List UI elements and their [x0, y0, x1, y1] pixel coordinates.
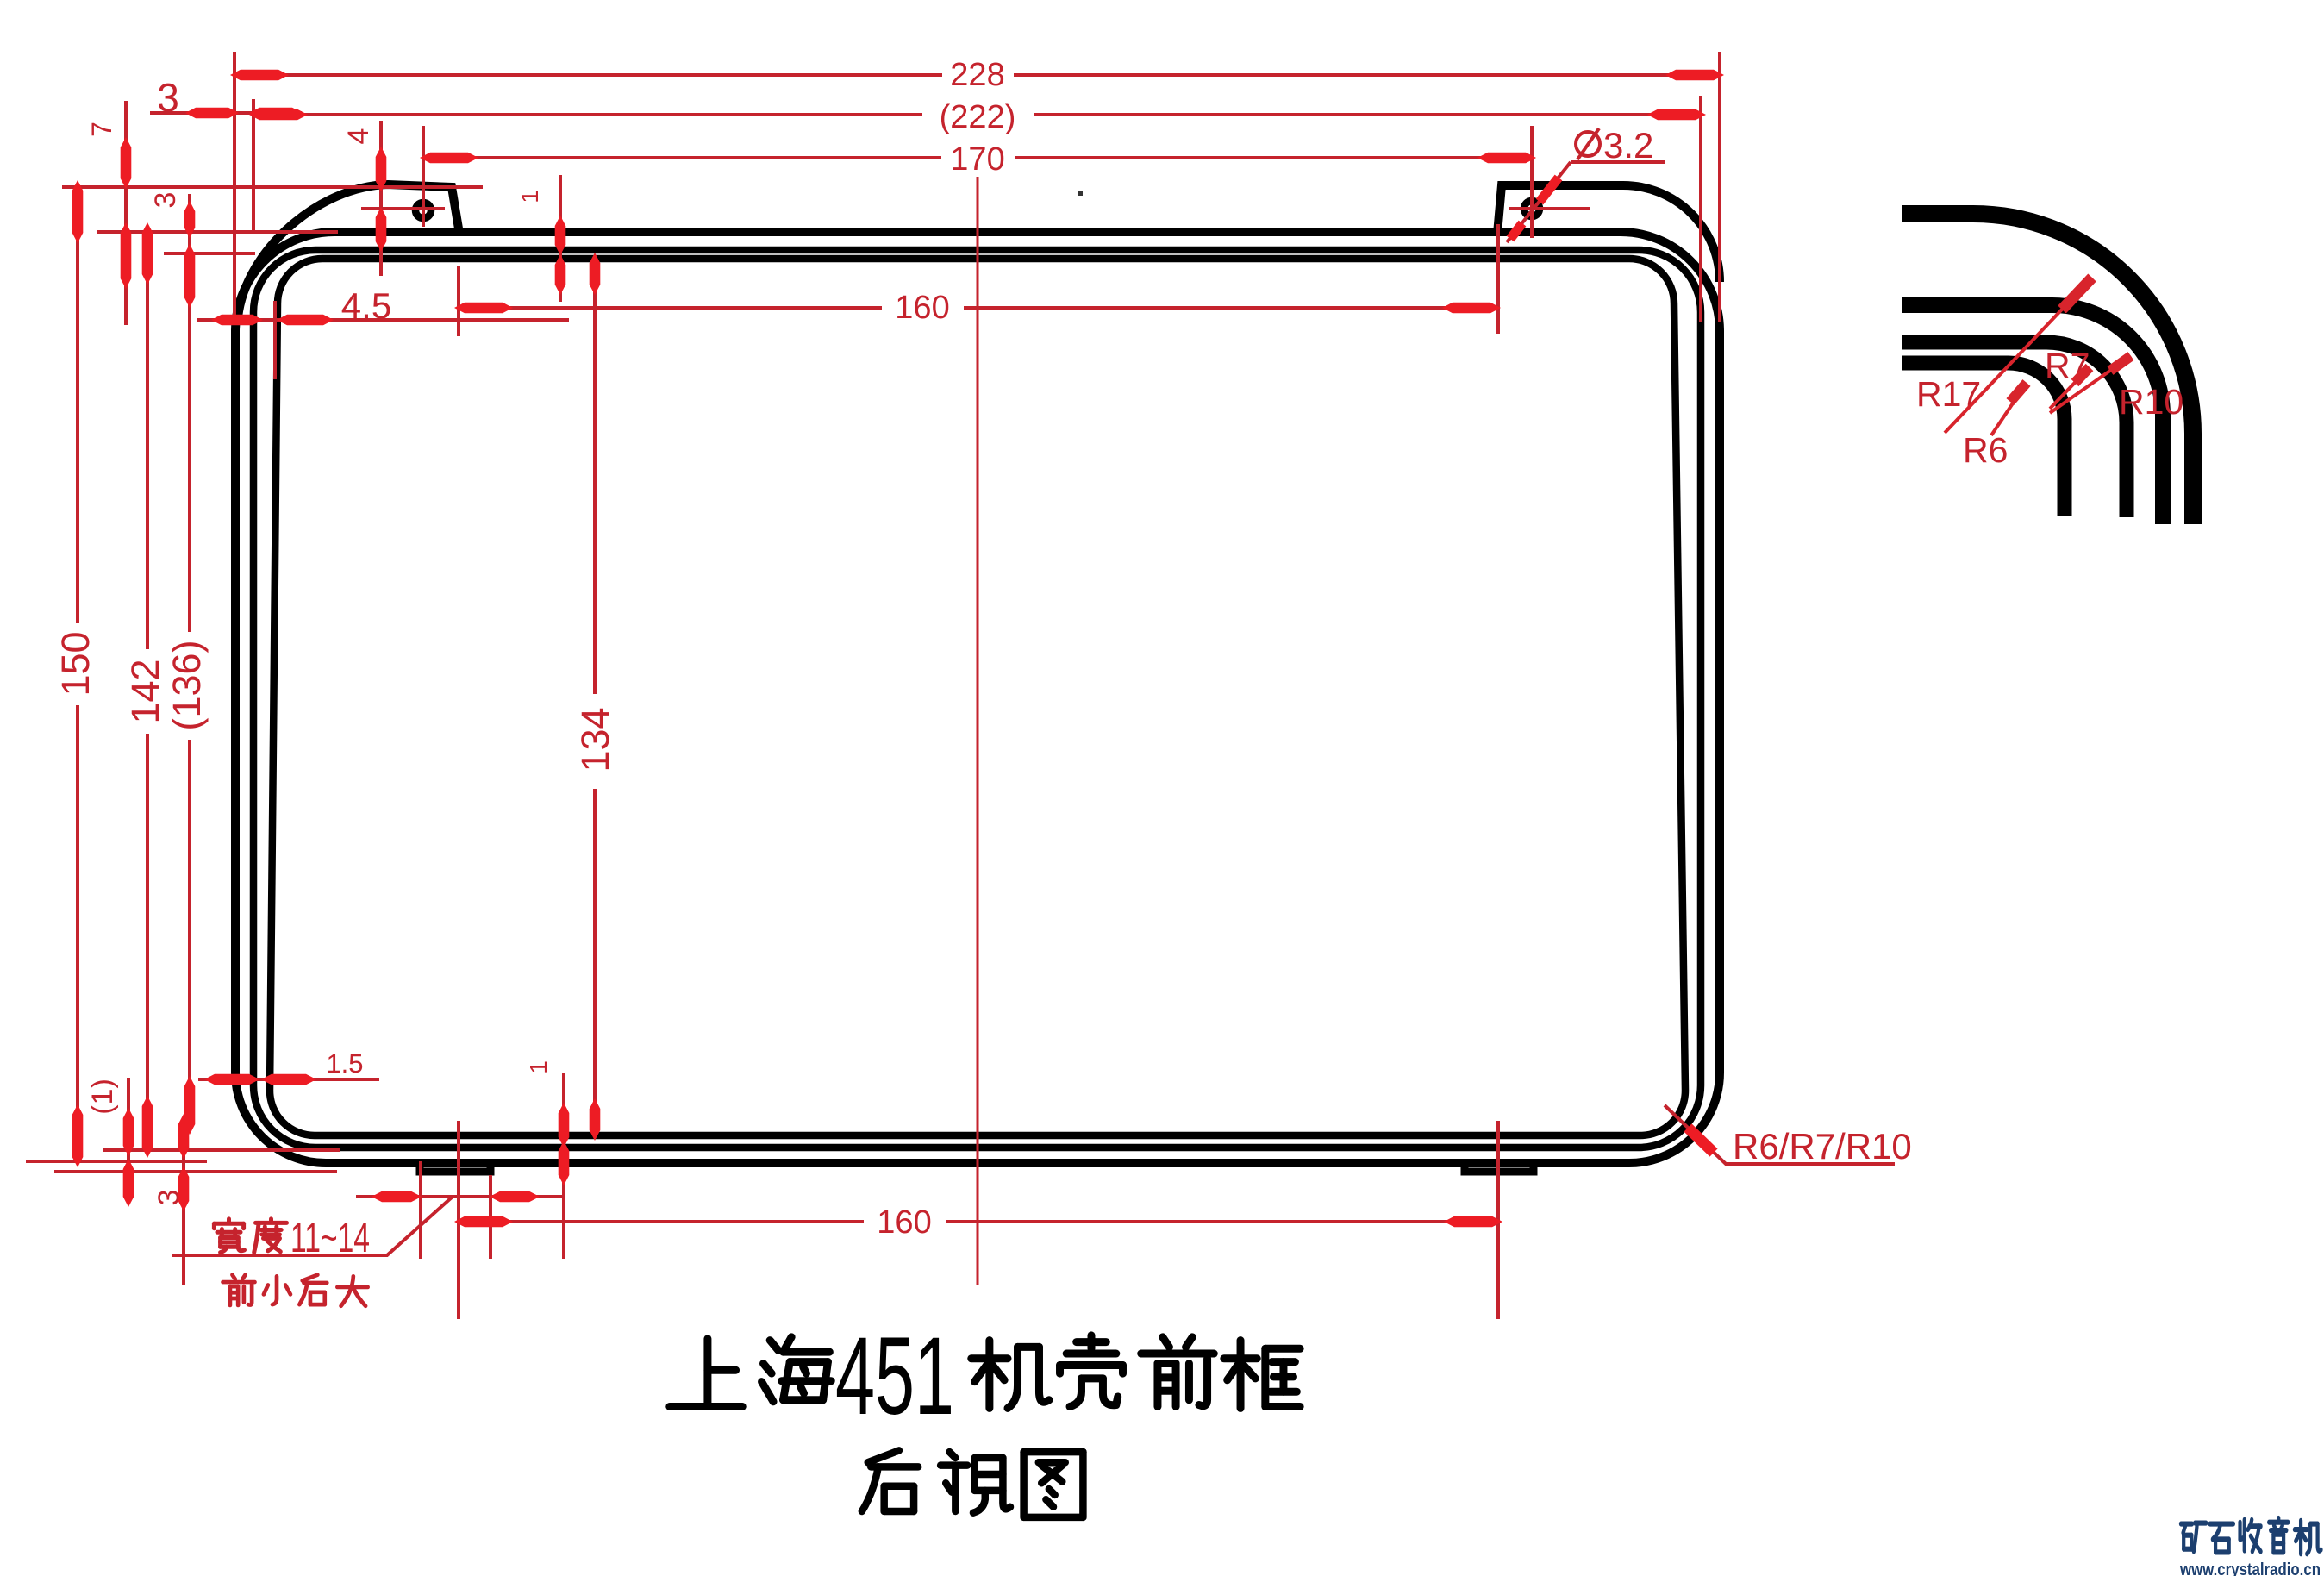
svg-text:(222): (222): [940, 99, 1016, 135]
svg-text:142: 142: [123, 659, 167, 723]
svg-text:3: 3: [157, 75, 179, 120]
svg-text:150: 150: [53, 631, 97, 696]
svg-text:3: 3: [149, 192, 182, 209]
svg-text:4: 4: [342, 128, 375, 145]
svg-text:1.5: 1.5: [326, 1048, 363, 1079]
svg-text:11~14: 11~14: [290, 1216, 370, 1261]
svg-text:(136): (136): [165, 640, 209, 730]
svg-text:3: 3: [153, 1190, 185, 1206]
svg-text:160: 160: [895, 290, 949, 326]
svg-text:134: 134: [573, 707, 617, 772]
svg-text:www.crystalradio.cn: www.crystalradio.cn: [2179, 1560, 2321, 1576]
svg-text:R10: R10: [2119, 382, 2183, 422]
svg-text:4.5: 4.5: [341, 285, 391, 326]
svg-text:R6: R6: [1963, 430, 2008, 470]
svg-text:170: 170: [950, 141, 1004, 178]
svg-text:R17: R17: [1916, 374, 1981, 414]
svg-text:451: 451: [835, 1315, 954, 1438]
svg-text:R6/R7/R10: R6/R7/R10: [1733, 1126, 1912, 1166]
svg-text:7: 7: [86, 122, 117, 137]
svg-text:228: 228: [950, 57, 1004, 93]
svg-text:1: 1: [525, 1060, 552, 1074]
svg-text:3.2: 3.2: [1603, 125, 1653, 166]
svg-text:1: 1: [516, 190, 543, 203]
svg-text:(1): (1): [86, 1079, 119, 1115]
svg-text:160: 160: [877, 1204, 931, 1241]
